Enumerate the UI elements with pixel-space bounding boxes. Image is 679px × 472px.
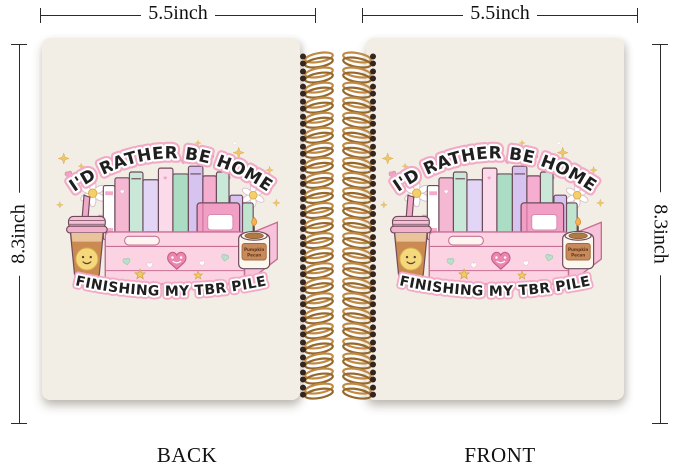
dimension-tick [637, 8, 638, 23]
dimension-line [363, 15, 463, 16]
dimension-height-left: 8.3inch [11, 44, 27, 424]
back-cover-artwork [55, 114, 287, 317]
back-cover [42, 38, 300, 400]
dimension-width-front: 5.5inch [362, 2, 638, 28]
dimension-height-label: 8.3inch [8, 192, 31, 275]
dimension-line [537, 15, 637, 16]
dimension-line [41, 15, 141, 16]
front-cover-artwork [379, 114, 611, 317]
front-view-label: FRONT [464, 443, 535, 468]
dimension-width-label: 5.5inch [463, 0, 536, 26]
dimension-width-label: 5.5inch [141, 0, 214, 26]
dimension-width-back: 5.5inch [40, 2, 316, 28]
product-image: Pumpkin Pecan I'D RATHER BE HOME I'D RAT… [0, 0, 679, 472]
dimension-height-label: 8.3inch [649, 192, 672, 275]
spiral-binding [296, 52, 380, 404]
dimension-tick [315, 8, 316, 23]
dimension-line [215, 15, 315, 16]
back-view-label: BACK [157, 443, 217, 468]
front-cover [366, 38, 624, 400]
dimension-height-right: 8.3inch [652, 44, 668, 424]
